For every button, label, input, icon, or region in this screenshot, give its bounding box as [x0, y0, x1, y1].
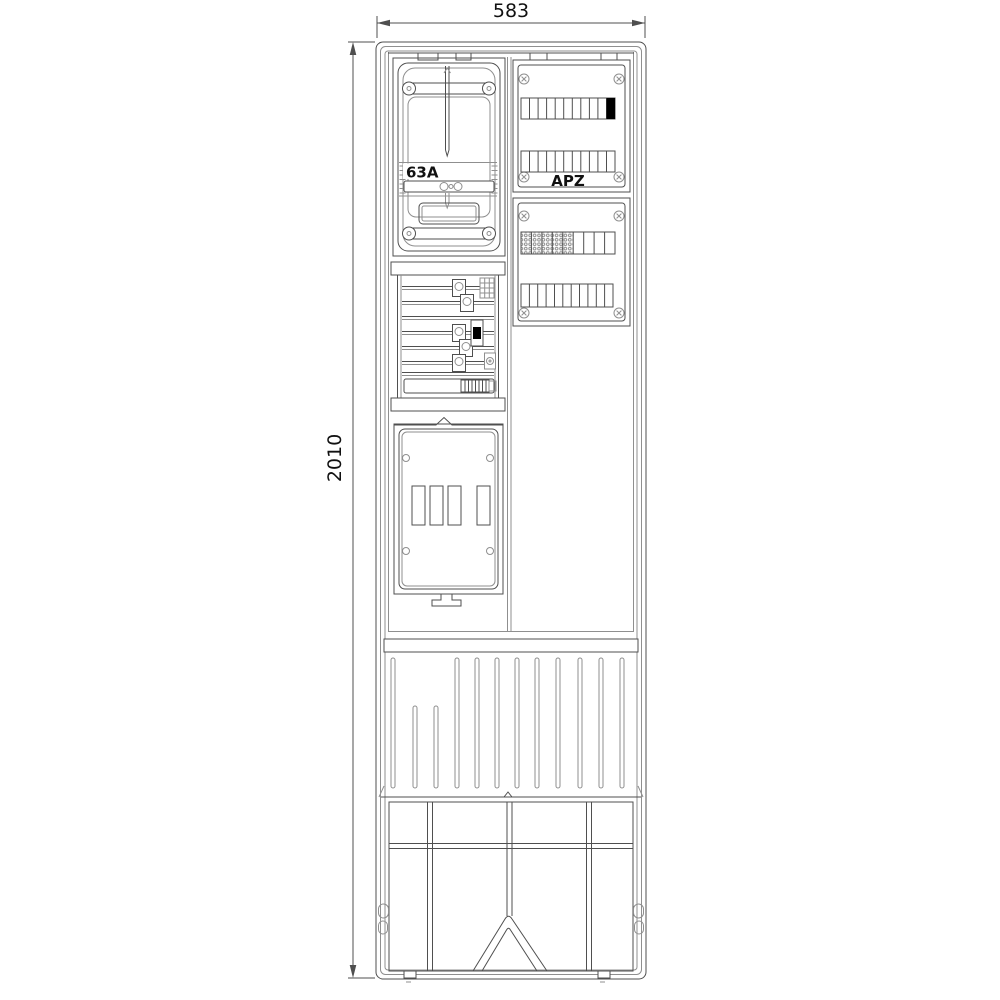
- busbar-clamp: [453, 280, 466, 297]
- dimension-width: 583: [377, 0, 645, 38]
- terminal-blocks-textured: [521, 232, 573, 254]
- arrow-up-icon: [350, 42, 357, 55]
- mounting-hole: [487, 548, 494, 555]
- meter-center-rail: [444, 66, 451, 156]
- meter-panel: 63A: [393, 58, 505, 256]
- meter-rating-label: 63A: [406, 164, 439, 182]
- seal-screw-icon: [483, 227, 496, 240]
- panel-slots: [412, 486, 490, 525]
- dimension-height-label: 2010: [324, 434, 346, 482]
- filled-module: [607, 98, 616, 119]
- short-rib: [413, 706, 417, 788]
- top-latch-notches: [418, 53, 617, 60]
- base-brace: [473, 916, 547, 971]
- mounting-hole: [487, 455, 494, 462]
- apz-panel: APZ: [513, 60, 630, 192]
- comb-busbar: [404, 379, 496, 393]
- panel-screw-icon: [614, 211, 624, 221]
- seal-screw-icon: [483, 82, 496, 95]
- small-terminal-component: [485, 353, 496, 369]
- panel-screw-icon: [614, 74, 624, 84]
- panel-screw-icon: [519, 74, 529, 84]
- apz-label: APZ: [551, 172, 585, 190]
- terminal-grid-component: [480, 278, 494, 298]
- drawing-page: 583 2010: [0, 0, 1000, 1000]
- panel-screw-icon: [614, 308, 624, 318]
- mounting-hole: [403, 548, 410, 555]
- dimension-width-label: 583: [493, 0, 529, 22]
- seal-screw-icon: [403, 227, 416, 240]
- technical-drawing: 583 2010: [0, 0, 1000, 1000]
- terminal-row-1: [521, 232, 615, 254]
- dimension-height: 2010: [324, 42, 375, 978]
- middle-rail: [384, 639, 638, 652]
- mounting-panel: [394, 418, 503, 607]
- panel-screw-icon: [519, 211, 529, 221]
- mounting-hole: [403, 455, 410, 462]
- base-feet: [404, 971, 610, 982]
- arrow-left-icon: [377, 20, 390, 27]
- busbar-clamp: [453, 355, 466, 372]
- ribbed-cable-section: [379, 658, 643, 797]
- seal-screw-icon: [403, 82, 416, 95]
- short-rib: [434, 706, 438, 788]
- panel-screw-icon: [519, 308, 529, 318]
- bottom-seal-bar: [404, 228, 494, 239]
- terminal-panel: [513, 198, 630, 326]
- apz-module-row-1: [521, 98, 615, 119]
- panel-screw-icon: [614, 172, 624, 182]
- busbar-clamp: [461, 295, 474, 312]
- base-section: [379, 792, 644, 982]
- apz-module-row-2: [521, 151, 615, 172]
- side-clips: [379, 904, 644, 934]
- busbar-section: [391, 262, 505, 411]
- arrow-down-icon: [350, 965, 357, 978]
- fuse-component: [471, 320, 483, 346]
- busbar-clamp: [453, 325, 466, 342]
- panel-screw-icon: [519, 172, 529, 182]
- panel-bottom-tab: [432, 594, 461, 606]
- terminal-row-2: [521, 284, 613, 307]
- arrow-right-icon: [632, 20, 645, 27]
